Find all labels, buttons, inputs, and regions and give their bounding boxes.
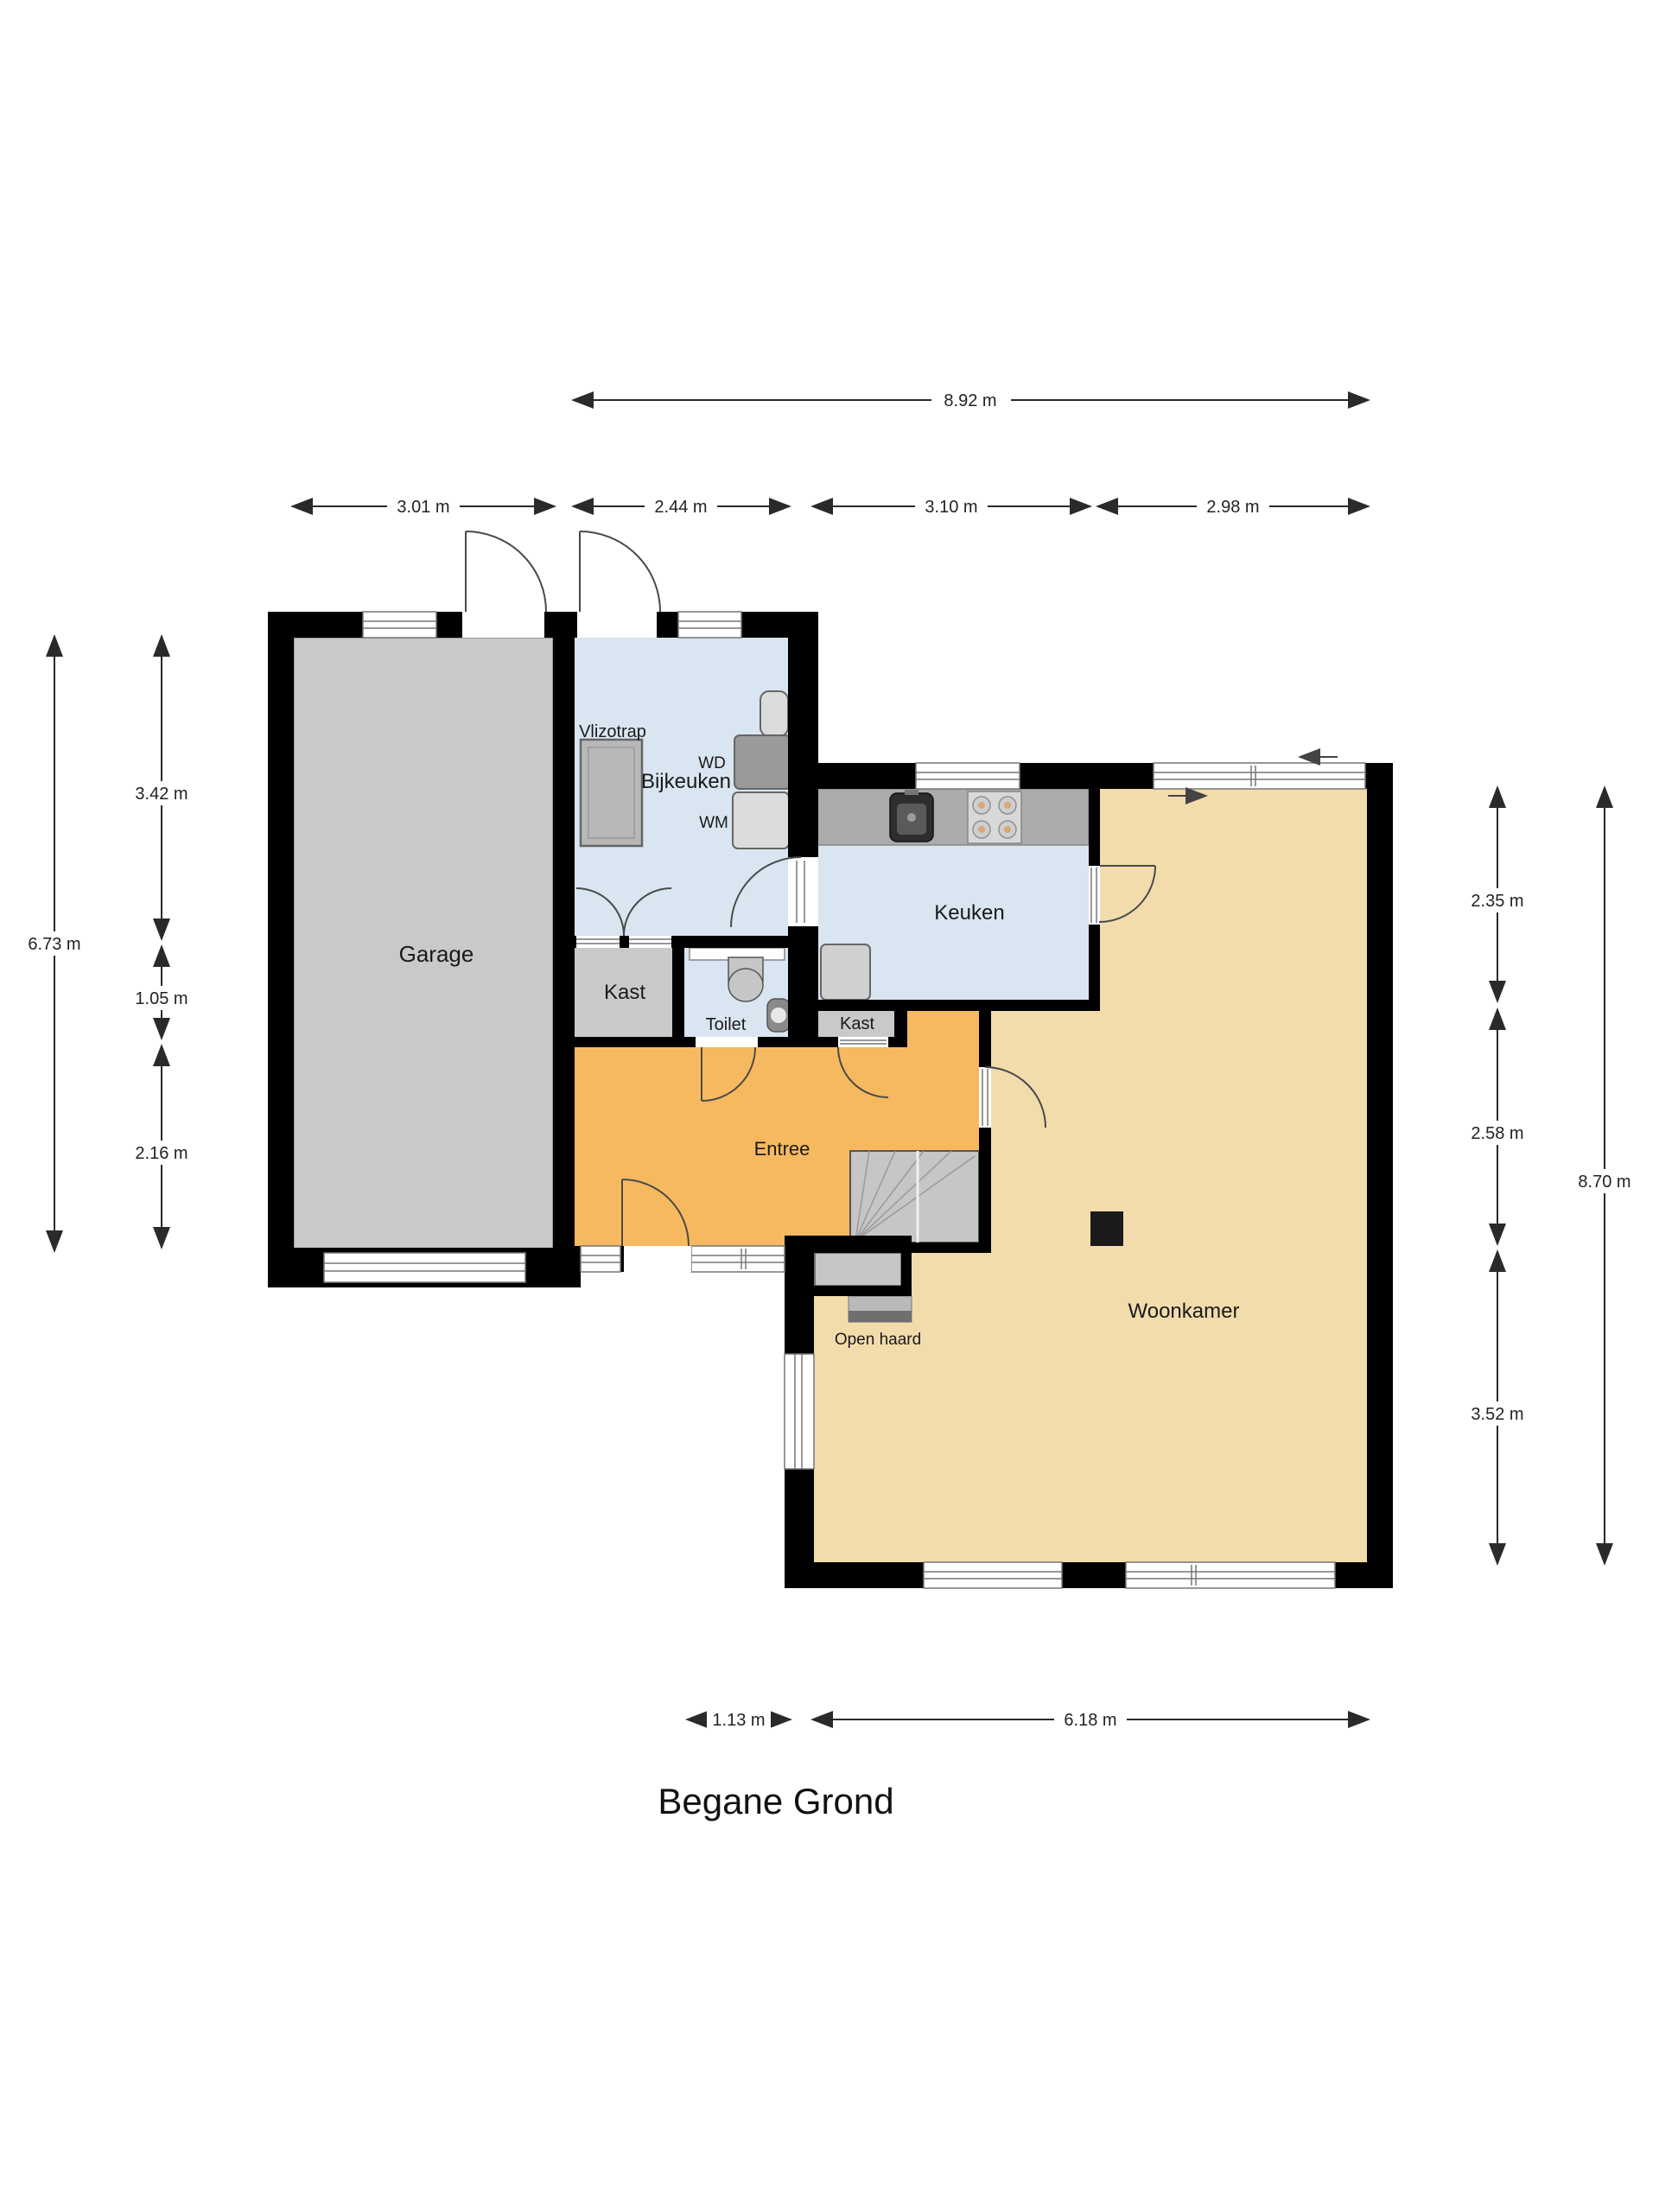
window-entree-bottom-right (691, 1246, 785, 1272)
wall-fireplace-side (901, 1253, 912, 1296)
chimney-column (1090, 1211, 1123, 1246)
dim-top-total: 8.92 m (575, 388, 1367, 412)
kast2-label: Kast (840, 1014, 874, 1033)
wall-nook-top (814, 1236, 912, 1253)
woonkamer-label: Woonkamer (1128, 1300, 1240, 1323)
wall-kast1-right (672, 948, 684, 1047)
dim-left-total: 6.73 m (16, 638, 93, 1249)
svg-text:1.05 m: 1.05 m (135, 989, 188, 1008)
svg-text:3.01 m: 3.01 m (397, 498, 449, 517)
kitchen-counter (814, 789, 1089, 845)
dim-right-lower: 3.52 m (1460, 1253, 1535, 1562)
window-keuken-top (916, 763, 1020, 789)
svg-text:2.35 m: 2.35 m (1471, 892, 1523, 911)
garage-label: Garage (399, 941, 474, 967)
dim-bottom-nook: 1.13 m (689, 1707, 789, 1732)
dim-left-kast: 1.05 m (124, 948, 199, 1037)
dim-right-mid: 2.58 m (1460, 1011, 1535, 1243)
dim-left-bijkeuken: 3.42 m (124, 638, 199, 938)
toilet-label: Toilet (706, 1015, 747, 1034)
stove (968, 791, 1021, 843)
window-living-bottom-right (1126, 1562, 1335, 1588)
svg-text:1.13 m: 1.13 m (712, 1711, 765, 1730)
bijkeuken-back-door (577, 531, 660, 638)
svg-text:8.70 m: 8.70 m (1578, 1173, 1630, 1192)
garage-back-door (462, 531, 546, 638)
keuken-label: Keuken (934, 901, 1004, 925)
open-haard-label: Open haard (835, 1331, 921, 1349)
window-bijkeuken-top (678, 612, 741, 638)
svg-text:2.44 m: 2.44 m (654, 498, 707, 517)
dim-top-bijkeuken: 2.44 m (575, 494, 788, 518)
entree-label: Entree (754, 1138, 810, 1160)
svg-text:6.73 m: 6.73 m (28, 935, 80, 954)
svg-text:2.16 m: 2.16 m (135, 1144, 188, 1163)
wm-appliance (733, 792, 789, 849)
wall-nook-left-lower (785, 1469, 814, 1573)
dim-top-woonkamer: 2.98 m (1099, 494, 1367, 518)
svg-text:6.18 m: 6.18 m (1064, 1711, 1116, 1730)
dim-bottom-living: 6.18 m (814, 1707, 1367, 1732)
wall-keuken-bottom (814, 1000, 1100, 1011)
dim-right-keuken: 2.35 m (1460, 789, 1535, 1000)
dim-top-garage: 3.01 m (294, 494, 553, 518)
window-entree-bottom-left (581, 1246, 620, 1272)
page-title: Begane Grond (658, 1781, 893, 1821)
kitchen-sink (890, 790, 933, 842)
vlizotrap-label: Vlizotrap (579, 722, 646, 741)
wm-label: WM (699, 814, 728, 832)
window-living-bottom-left (924, 1562, 1062, 1588)
window-garage-bottom (324, 1253, 525, 1282)
dim-top-keuken: 3.10 m (814, 494, 1089, 518)
dim-right-total: 8.70 m (1567, 789, 1642, 1562)
svg-text:2.58 m: 2.58 m (1471, 1124, 1523, 1143)
wall-garage-left (268, 612, 294, 1287)
floorplan-canvas: Garage Vlizotrap Bijkeuken WD WM Keuken … (0, 0, 1659, 2212)
kast1-label: Kast (604, 981, 645, 1004)
dim-left-entree: 2.16 m (124, 1047, 199, 1246)
bijkeuken-sink (760, 691, 788, 736)
wall-fireplace-band (814, 1286, 912, 1296)
wd-label: WD (698, 754, 726, 772)
window-garage-top (363, 612, 436, 638)
wd-appliance (734, 735, 791, 789)
svg-text:8.92 m: 8.92 m (944, 391, 996, 410)
svg-text:2.98 m: 2.98 m (1206, 498, 1259, 517)
floorplan-page: Garage Vlizotrap Bijkeuken WD WM Keuken … (0, 0, 1659, 2212)
svg-text:3.10 m: 3.10 m (925, 498, 977, 517)
kitchen-cabinet (821, 944, 870, 1000)
wall-bijkeuken-right (788, 612, 818, 1047)
vlizotrap-hatch (581, 740, 642, 846)
wall-kast2-right (894, 1000, 907, 1047)
window-nook-left (785, 1354, 814, 1469)
bijkeuken-label: Bijkeuken (641, 770, 731, 793)
window-woonkamer-top (1154, 763, 1365, 789)
wall-garage-right (553, 638, 575, 1249)
stairs (850, 1151, 979, 1243)
wall-right (1367, 763, 1393, 1588)
svg-text:3.42 m: 3.42 m (135, 785, 188, 804)
svg-text:3.52 m: 3.52 m (1471, 1405, 1523, 1424)
toilet-basin (767, 999, 790, 1032)
